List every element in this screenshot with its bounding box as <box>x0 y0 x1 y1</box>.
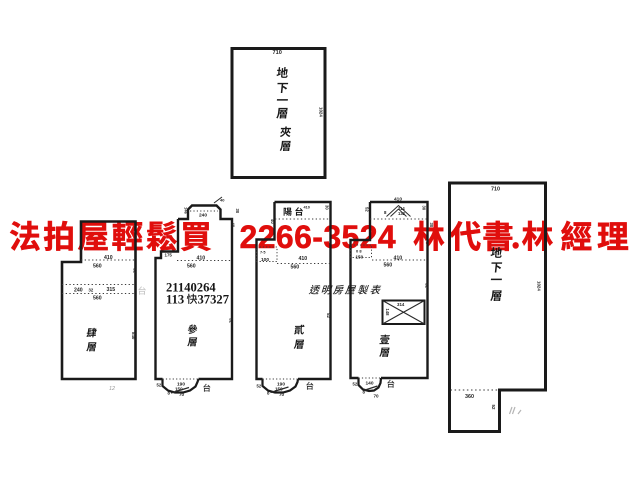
svg-text:240: 240 <box>199 213 207 219</box>
svg-text:52: 52 <box>326 313 331 318</box>
svg-text:32: 32 <box>89 288 94 293</box>
svg-text:360: 360 <box>465 394 474 400</box>
svg-text:410: 410 <box>394 197 402 203</box>
svg-text:7·5: 7·5 <box>260 251 266 255</box>
svg-text:314: 314 <box>397 302 405 307</box>
svg-text:560: 560 <box>93 296 102 302</box>
svg-text:52: 52 <box>229 318 234 323</box>
svg-text:12: 12 <box>109 386 115 392</box>
svg-text:140: 140 <box>366 381 374 387</box>
svg-text:150: 150 <box>175 387 183 392</box>
svg-text:52: 52 <box>353 382 358 387</box>
svg-text:710: 710 <box>491 187 500 193</box>
svg-text:37327: 37327 <box>198 293 229 307</box>
svg-text:40: 40 <box>220 198 225 203</box>
svg-text:840: 840 <box>131 332 136 340</box>
svg-text:70: 70 <box>279 392 285 397</box>
svg-text:560: 560 <box>187 264 196 270</box>
svg-text:410: 410 <box>197 256 206 262</box>
svg-text:410: 410 <box>104 255 113 261</box>
svg-text:52: 52 <box>157 383 162 388</box>
svg-text:40: 40 <box>231 223 236 228</box>
svg-text:560: 560 <box>93 264 102 270</box>
svg-text:1024: 1024 <box>319 107 324 117</box>
svg-text:240: 240 <box>74 288 83 294</box>
svg-text:1024: 1024 <box>537 281 542 291</box>
svg-text:410: 410 <box>394 256 403 262</box>
svg-text:30: 30 <box>422 206 427 211</box>
svg-text:315: 315 <box>107 287 116 293</box>
svg-text:410: 410 <box>299 256 308 262</box>
svg-text:150: 150 <box>275 387 283 392</box>
svg-text:132: 132 <box>398 211 406 216</box>
svg-text:113: 113 <box>166 293 184 307</box>
svg-text:70: 70 <box>179 392 185 397</box>
svg-text:560: 560 <box>384 263 393 269</box>
svg-text:52: 52 <box>425 283 430 288</box>
svg-text:70: 70 <box>374 394 380 399</box>
svg-text:175: 175 <box>165 253 173 258</box>
svg-text:52: 52 <box>491 405 496 410</box>
svg-text:710: 710 <box>273 50 282 56</box>
svg-text:114: 114 <box>398 206 405 211</box>
svg-text:52: 52 <box>133 268 138 273</box>
svg-text:30: 30 <box>325 205 330 210</box>
svg-text:30: 30 <box>429 223 434 228</box>
svg-text:52: 52 <box>365 207 370 212</box>
svg-text:52: 52 <box>257 384 262 389</box>
svg-text:100: 100 <box>261 257 269 263</box>
svg-text:0 8: 0 8 <box>356 249 362 254</box>
svg-text:560: 560 <box>291 265 300 271</box>
svg-text:150: 150 <box>356 255 364 260</box>
svg-text:2266-3524: 2266-3524 <box>240 219 397 255</box>
svg-text:410: 410 <box>304 206 310 210</box>
svg-text:30: 30 <box>235 209 240 214</box>
svg-text:40: 40 <box>270 219 275 224</box>
svg-text:146: 146 <box>184 207 189 214</box>
svg-text:148: 148 <box>385 309 390 317</box>
